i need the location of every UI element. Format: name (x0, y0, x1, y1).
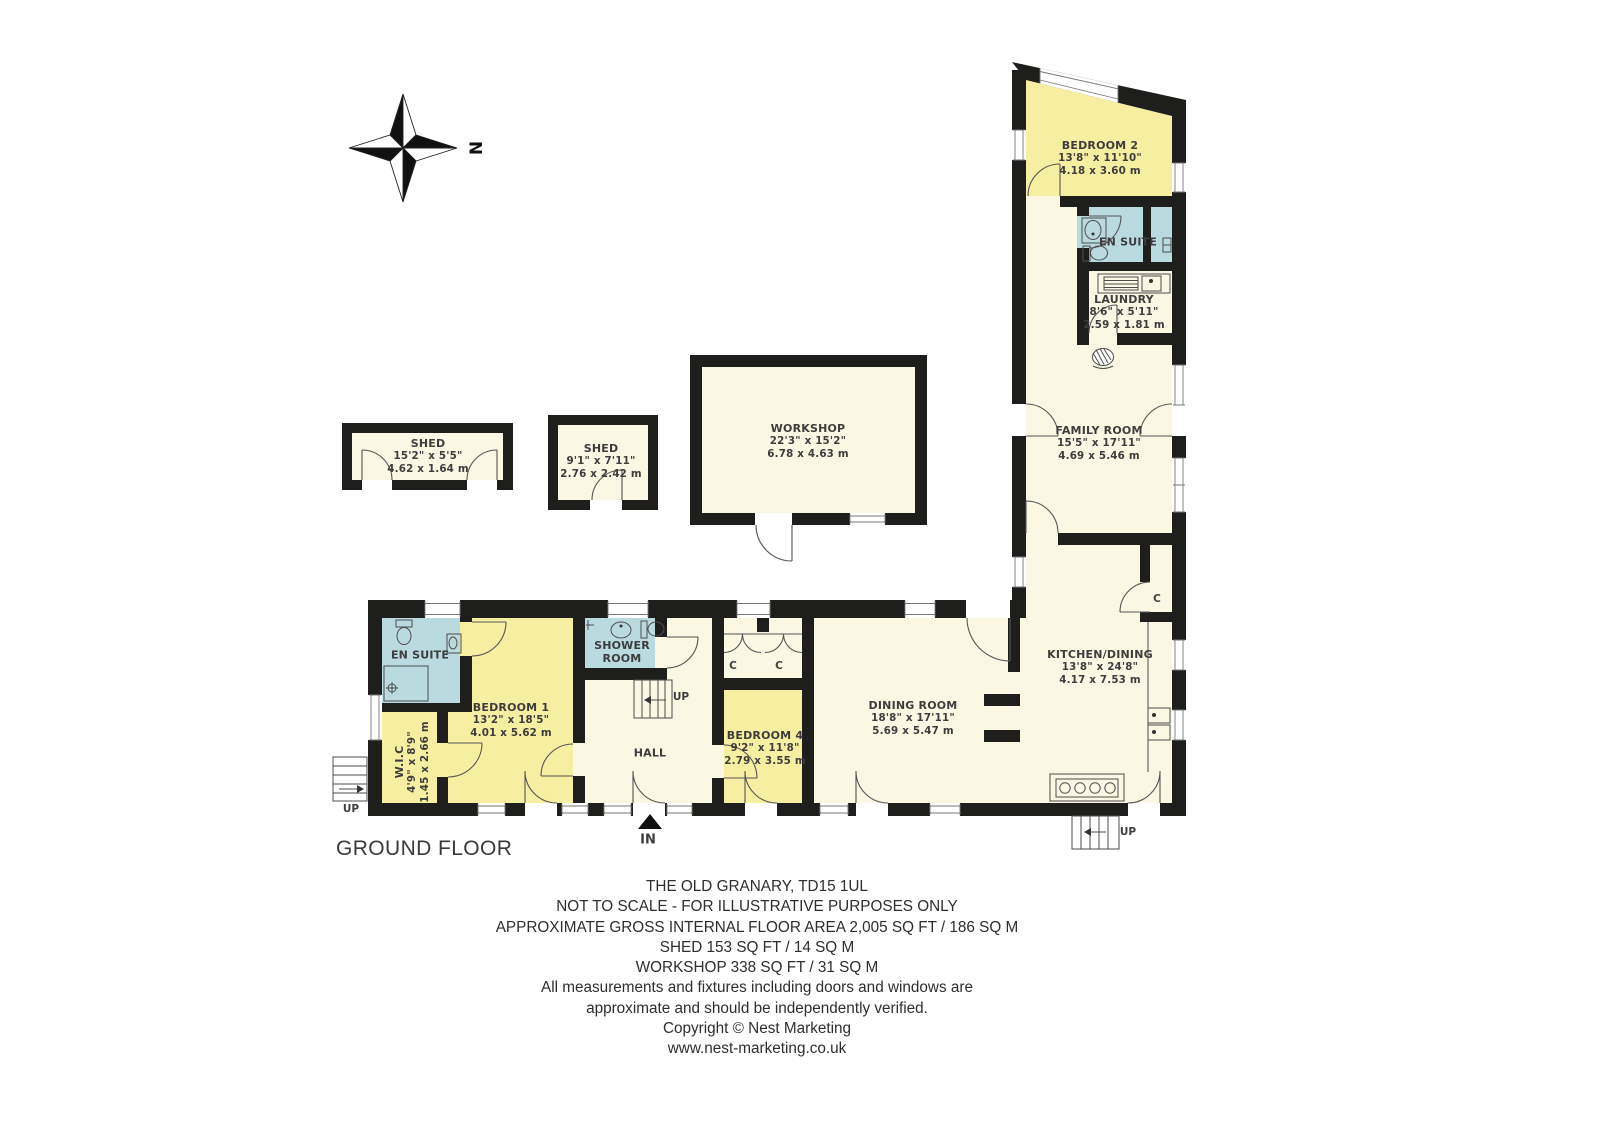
room-dim-ft: 18'8" x 17'11" (869, 712, 958, 724)
footer-line-workshop-area: WORKSHOP 338 SQ FT / 31 SQ M (0, 958, 1514, 978)
footer-text-block: THE OLD GRANARY, TD15 1UL NOT TO SCALE -… (0, 877, 1514, 1060)
footer-line-website: www.nest-marketing.co.uk (0, 1039, 1514, 1059)
room-dim-ft: 13'8" x 11'10" (1058, 152, 1142, 164)
room-dim-ft: 15'2" x 5'5" (387, 450, 469, 462)
up-label-right-stairs: UP (1120, 827, 1136, 838)
room-dim-m: 5.69 x 5.47 m (869, 725, 958, 737)
room-name: BEDROOM 2 (1058, 139, 1142, 152)
room-label-en-suite-1: EN SUITE (391, 648, 449, 661)
room-name: EN SUITE (391, 648, 449, 661)
footer-line-shed-area: SHED 153 SQ FT / 14 SQ M (0, 938, 1514, 958)
closet-marker: C (729, 661, 737, 672)
room-label-family-room: FAMILY ROOM 15'5" x 17'11" 4.69 x 5.46 m (1055, 424, 1142, 462)
room-name: HALL (634, 746, 667, 759)
room-dim-ft: 13'8" x 24'8" (1047, 661, 1153, 673)
room-name: LAUNDRY (1083, 293, 1165, 306)
room-dim-m: 4.18 x 3.60 m (1058, 165, 1142, 177)
room-dim-m: 4.69 x 5.46 m (1055, 450, 1142, 462)
entrance-label: IN (640, 834, 656, 847)
room-dim-ft: 22'3" x 15'2" (767, 435, 849, 447)
room-dim-ft: 8'6" x 5'11" (1083, 306, 1165, 318)
closet-marker: C (1153, 594, 1161, 605)
room-name: WORKSHOP (767, 422, 849, 435)
up-label-hall-stairs: UP (673, 692, 689, 703)
room-name: BEDROOM 1 (470, 701, 552, 714)
room-dim-m: 6.78 x 4.63 m (767, 448, 849, 460)
footer-line-scale: NOT TO SCALE - FOR ILLUSTRATIVE PURPOSES… (0, 897, 1514, 917)
room-label-shed-small: SHED 9'1" x 7'11" 2.76 x 2.42 m (560, 442, 642, 480)
footer-line-area: APPROXIMATE GROSS INTERNAL FLOOR AREA 2,… (0, 918, 1514, 938)
footer-line-disclaimer-1: All measurements and fixtures including … (0, 978, 1514, 998)
room-dim-ft: 4'9" x 8'9" (406, 721, 418, 803)
room-label-wic: W.I.C 4'9" x 8'9" 1.45 x 2.66 m (393, 721, 431, 803)
room-label-en-suite-2: EN SUITE (1099, 235, 1157, 248)
room-dim-m: 4.62 x 1.64 m (387, 463, 469, 475)
room-label-kitchen-dining: KITCHEN/DINING 13'8" x 24'8" 4.17 x 7.53… (1047, 648, 1153, 686)
room-dim-ft: 9'2" x 11'8" (724, 742, 806, 754)
room-label-bedroom-1: BEDROOM 1 13'2" x 18'5" 4.01 x 5.62 m (470, 701, 552, 739)
up-label-left-stairs: UP (343, 804, 359, 815)
floor-plan-page: BEDROOM 2 13'8" x 11'10" 4.18 x 3.60 m E… (0, 0, 1600, 1131)
room-label-shower-room: SHOWER ROOM (594, 639, 650, 665)
room-name: DINING ROOM (869, 699, 958, 712)
room-label-dining-room: DINING ROOM 18'8" x 17'11" 5.69 x 5.47 m (869, 699, 958, 737)
room-name: W.I.C (393, 721, 406, 803)
entrance-arrow (638, 814, 662, 829)
stairs-external-right (1072, 816, 1119, 849)
footer-line-copyright: Copyright © Nest Marketing (0, 1019, 1514, 1039)
room-name: SHED (387, 437, 469, 450)
footer-line-disclaimer-2: approximate and should be independently … (0, 999, 1514, 1019)
room-dim-m: 4.17 x 7.53 m (1047, 674, 1153, 686)
room-label-hall: HALL (634, 746, 667, 759)
room-dim-ft: 9'1" x 7'11" (560, 455, 642, 467)
room-dim-m: 2.59 x 1.81 m (1083, 319, 1165, 331)
room-label-workshop: WORKSHOP 22'3" x 15'2" 6.78 x 4.63 m (767, 422, 849, 460)
compass-rose (349, 94, 457, 202)
room-name-line2: ROOM (594, 652, 650, 665)
room-name: SHOWER (594, 639, 650, 652)
room-label-laundry: LAUNDRY 8'6" x 5'11" 2.59 x 1.81 m (1083, 293, 1165, 331)
room-dim-m: 2.79 x 3.55 m (724, 755, 806, 767)
room-dim-ft: 13'2" x 18'5" (470, 714, 552, 726)
room-dim-m: 2.76 x 2.42 m (560, 468, 642, 480)
footer-line-address: THE OLD GRANARY, TD15 1UL (0, 877, 1514, 897)
room-label-bedroom-2: BEDROOM 2 13'8" x 11'10" 4.18 x 3.60 m (1058, 139, 1142, 177)
room-label-bedroom-4: BEDROOM 4 9'2" x 11'8" 2.79 x 3.55 m (724, 729, 806, 767)
compass-north-label: N (466, 141, 483, 155)
room-name: EN SUITE (1099, 235, 1157, 248)
room-dim-m: 1.45 x 2.66 m (419, 721, 431, 803)
room-name: SHED (560, 442, 642, 455)
room-label-shed-large: SHED 15'2" x 5'5" 4.62 x 1.64 m (387, 437, 469, 475)
room-name: BEDROOM 4 (724, 729, 806, 742)
closet-marker: C (775, 661, 783, 672)
floor-title: GROUND FLOOR (336, 836, 512, 861)
room-dim-ft: 15'5" x 17'11" (1055, 437, 1142, 449)
room-dim-m: 4.01 x 5.62 m (470, 727, 552, 739)
room-name: FAMILY ROOM (1055, 424, 1142, 437)
stairs-external-left (333, 757, 367, 801)
room-name: KITCHEN/DINING (1047, 648, 1153, 661)
